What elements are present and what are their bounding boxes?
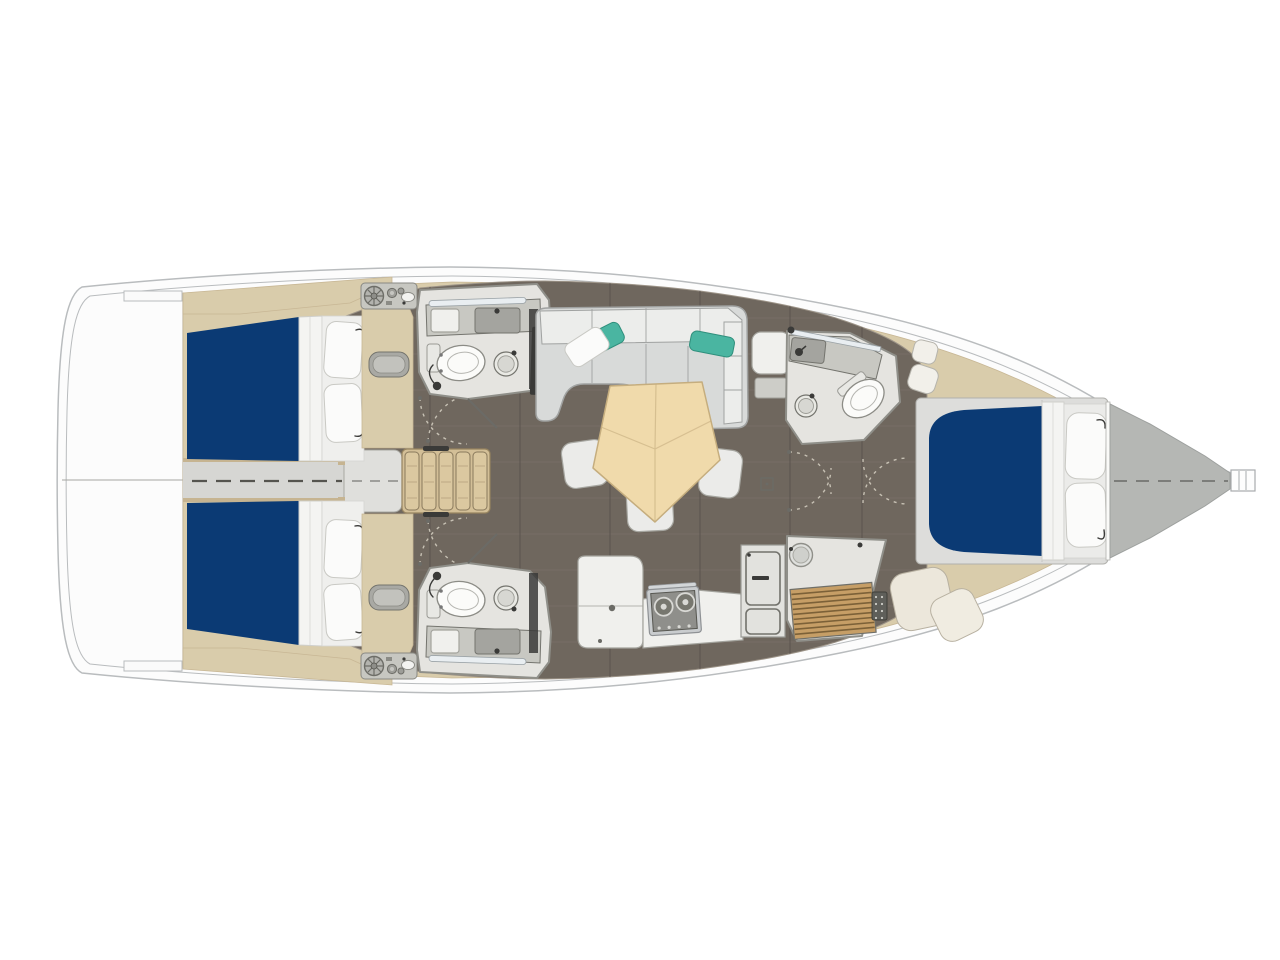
forepeak [1106, 402, 1255, 560]
companionway-stairs [402, 446, 490, 517]
berth-mattress-navy [187, 317, 299, 461]
berth-mattress-navy [929, 406, 1042, 556]
pillow [1065, 412, 1107, 479]
pillow [324, 383, 364, 443]
galley-peninsula [578, 556, 643, 648]
basin-faucet [810, 394, 815, 399]
stove [646, 582, 701, 636]
berth-foot-pad [299, 316, 322, 461]
stern-step [124, 291, 182, 301]
side-locker [755, 378, 787, 398]
sink [790, 337, 826, 363]
fridge-handle [752, 576, 769, 580]
forward-bulkhead [1106, 402, 1110, 560]
basin-faucet [512, 351, 517, 356]
pillow [1065, 482, 1107, 547]
faucet [494, 308, 499, 313]
bow-fitting [1231, 470, 1255, 491]
boat-floorplan-canvas [0, 0, 1280, 960]
vanity-cabinet [431, 309, 459, 332]
shower-control-panel [872, 592, 887, 620]
fridge-cabinet [741, 545, 785, 637]
side-table [752, 332, 790, 374]
boat-floorplan [0, 0, 1280, 960]
forward-shower [787, 536, 887, 641]
stair-handle [423, 512, 449, 517]
deck-hardware-port [361, 283, 417, 309]
deck-hardware-starboard [361, 653, 417, 679]
stair-handle [423, 446, 449, 451]
